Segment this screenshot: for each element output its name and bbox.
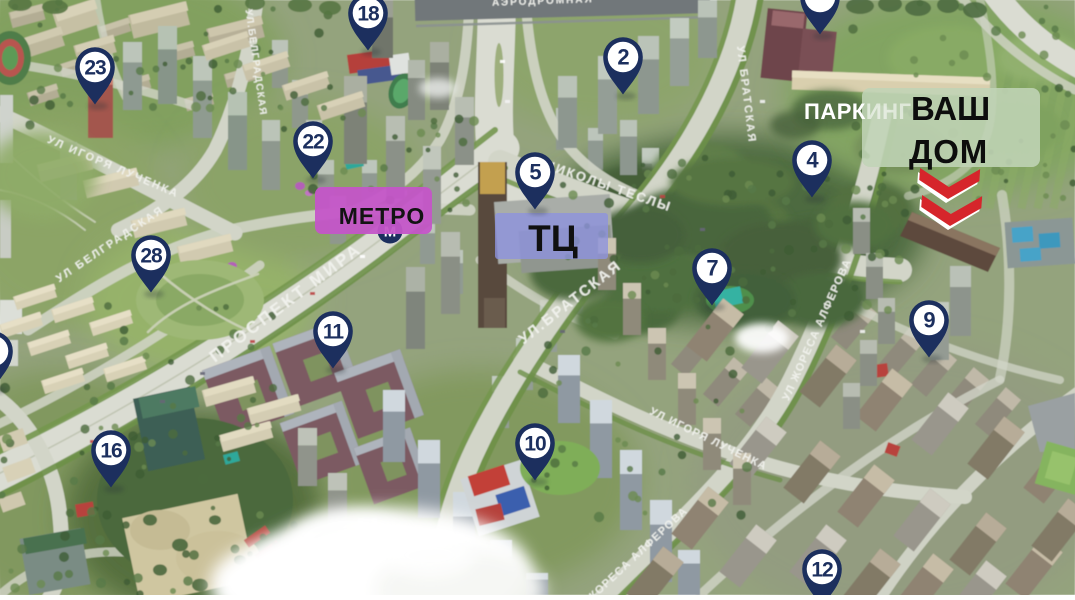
svg-text:16: 16 xyxy=(100,440,122,463)
svg-text:5: 5 xyxy=(529,160,541,185)
svg-text:ВАШ: ВАШ xyxy=(911,90,990,127)
svg-text:23: 23 xyxy=(84,57,106,80)
svg-text:ДОМ: ДОМ xyxy=(909,133,988,170)
svg-text:ПАРКИНГ: ПАРКИНГ xyxy=(804,99,912,124)
svg-text:11: 11 xyxy=(323,321,345,344)
svg-text:ТЦ: ТЦ xyxy=(528,218,578,259)
svg-text:12: 12 xyxy=(811,559,833,582)
svg-text:28: 28 xyxy=(140,245,163,268)
svg-text:МЕТРО: МЕТРО xyxy=(339,203,425,229)
svg-text:7: 7 xyxy=(706,256,718,281)
svg-text:18: 18 xyxy=(357,3,380,26)
svg-text:9: 9 xyxy=(923,308,935,333)
svg-text:4: 4 xyxy=(806,148,819,173)
svg-text:2: 2 xyxy=(617,45,629,70)
svg-text:10: 10 xyxy=(524,433,546,456)
svg-text:22: 22 xyxy=(302,131,324,154)
